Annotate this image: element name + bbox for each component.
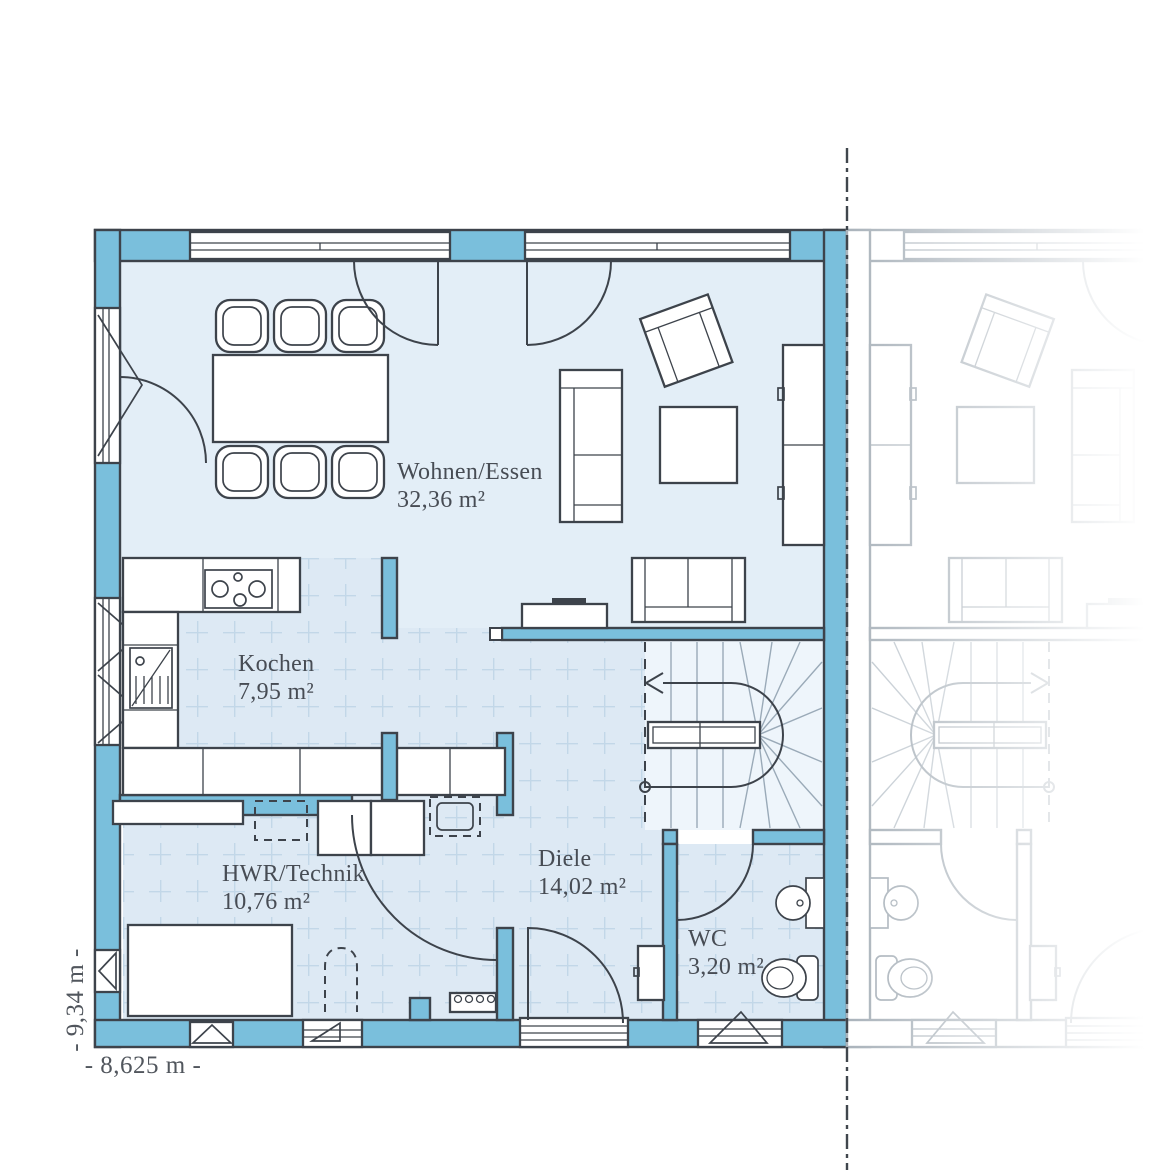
ghost-unit xyxy=(847,230,1170,1047)
floor-plan-canvas: Wohnen/Essen 32,36 m² Kochen 7,95 m² HWR… xyxy=(0,0,1170,1170)
room-name: Kochen xyxy=(238,650,314,678)
room-name: Wohnen/Essen xyxy=(397,458,543,486)
room-label-wohnen: Wohnen/Essen 32,36 m² xyxy=(397,458,543,515)
room-area: 14,02 m² xyxy=(538,873,626,901)
room-area: 7,95 m² xyxy=(238,678,314,706)
floor-plan-drawing xyxy=(0,0,1170,1170)
height-dimension-label: - 9,34 m - xyxy=(62,948,90,1052)
room-name: Diele xyxy=(538,845,626,873)
room-label-hwr: HWR/Technik 10,76 m² xyxy=(222,860,365,917)
room-label-wc: WC 3,20 m² xyxy=(688,925,764,982)
room-label-kochen: Kochen 7,95 m² xyxy=(238,650,314,707)
width-dimension-label: - 8,625 m - xyxy=(85,1052,202,1080)
room-name: HWR/Technik xyxy=(222,860,365,888)
room-label-diele: Diele 14,02 m² xyxy=(538,845,626,902)
room-area: 32,36 m² xyxy=(397,486,543,514)
room-area: 3,20 m² xyxy=(688,953,764,981)
room-name: WC xyxy=(688,925,764,953)
room-area: 10,76 m² xyxy=(222,888,365,916)
